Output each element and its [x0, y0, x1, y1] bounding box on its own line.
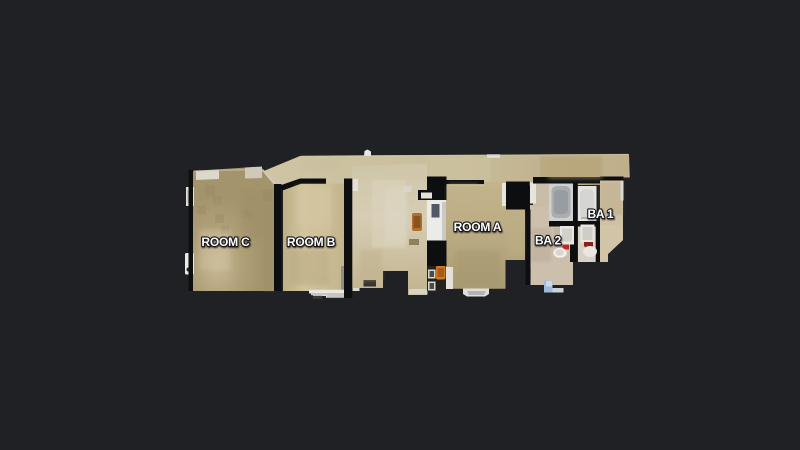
svg-text:ROOM C: ROOM C: [201, 235, 250, 249]
svg-text:BA 2: BA 2: [535, 234, 562, 248]
svg-text:ROOM B: ROOM B: [287, 235, 336, 249]
svg-text:ROOM A: ROOM A: [454, 220, 502, 234]
svg-text:BA 1: BA 1: [587, 207, 614, 221]
